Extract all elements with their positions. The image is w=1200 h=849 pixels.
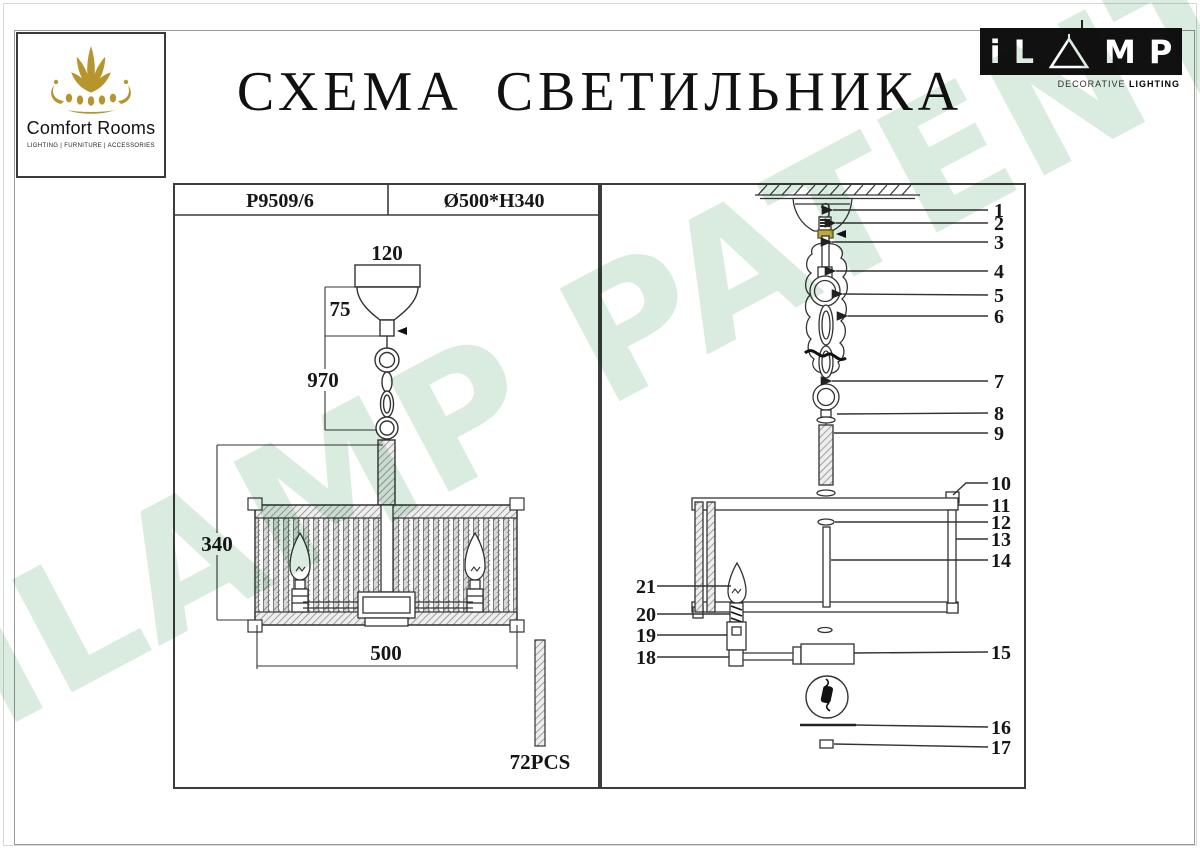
part-label-13: 13 xyxy=(991,529,1011,551)
part-label-10: 10 xyxy=(991,473,1011,495)
part-label-4: 4 xyxy=(994,261,1004,283)
right-diagram-canvas: 1 2 3 4 5 6 7 8 9 10 11 12 13 14 15 16 1… xyxy=(600,183,1026,789)
rod-count-label: 72PCS xyxy=(510,750,571,774)
part-label-6: 6 xyxy=(994,306,1004,328)
part-label-7: 7 xyxy=(994,371,1004,393)
dim-canopy-height: 75 xyxy=(330,297,351,321)
part-label-8: 8 xyxy=(994,403,1004,425)
dim-body-diameter: 500 xyxy=(370,641,402,665)
crown-icon xyxy=(31,40,151,120)
part-label-17: 17 xyxy=(991,737,1011,759)
part-label-15: 15 xyxy=(991,642,1011,664)
ilamp-letter-p: P xyxy=(1149,36,1172,68)
page-title: СХЕМА СВЕТИЛЬНИКА xyxy=(170,60,1030,124)
part-label-19: 19 xyxy=(636,625,656,647)
dim-body-height: 340 xyxy=(201,532,233,556)
ilamp-subtitle: DECORATIVE LIGHTING xyxy=(1058,79,1180,89)
chain-drawing xyxy=(375,336,399,505)
lamp-shade-a-icon xyxy=(1047,34,1091,70)
comfort-rooms-logo: Comfort Rooms LIGHTING | FURNITURE | ACC… xyxy=(16,32,166,178)
glass-rod-sample xyxy=(535,640,545,746)
part-label-14: 14 xyxy=(991,550,1011,572)
canopy-exploded xyxy=(793,199,852,239)
ilamp-subtitle-bold: LIGHTING xyxy=(1129,79,1180,89)
lamp-cord-icon xyxy=(1081,20,1083,28)
ilamp-logo: i L M P xyxy=(980,28,1182,75)
part-label-21: 21 xyxy=(636,576,656,598)
part-label-16: 16 xyxy=(991,717,1011,739)
model-code: P9509/6 xyxy=(246,190,314,212)
ilamp-letter-i: i xyxy=(990,36,1001,68)
ilamp-subtitle-normal: DECORATIVE xyxy=(1058,79,1129,89)
part-label-20: 20 xyxy=(636,604,656,626)
wire-connector-detail xyxy=(806,676,848,718)
dim-suspension: 970 xyxy=(307,368,339,392)
ilamp-letter-l: L xyxy=(1014,36,1034,68)
bulb-socket-exploded xyxy=(727,563,854,666)
left-diagram-canvas: P9509/6 Ø500*H340 120 75 970 xyxy=(173,183,600,789)
ilamp-letter-m: M xyxy=(1104,36,1136,68)
canopy-drawing xyxy=(355,265,420,336)
schematic-page: Comfort Rooms LIGHTING | FURNITURE | ACC… xyxy=(0,0,1200,849)
part-label-5: 5 xyxy=(994,285,1004,307)
comfort-rooms-tagline: LIGHTING | FURNITURE | ACCESSORIES xyxy=(27,143,155,149)
part-label-3: 3 xyxy=(994,232,1004,254)
size-code: Ø500*H340 xyxy=(443,190,544,212)
part-label-18: 18 xyxy=(636,647,656,669)
dim-canopy-width: 120 xyxy=(371,241,403,265)
ceiling-hatch xyxy=(755,185,920,199)
part-label-9: 9 xyxy=(994,423,1004,445)
comfort-rooms-name: Comfort Rooms xyxy=(27,118,156,139)
